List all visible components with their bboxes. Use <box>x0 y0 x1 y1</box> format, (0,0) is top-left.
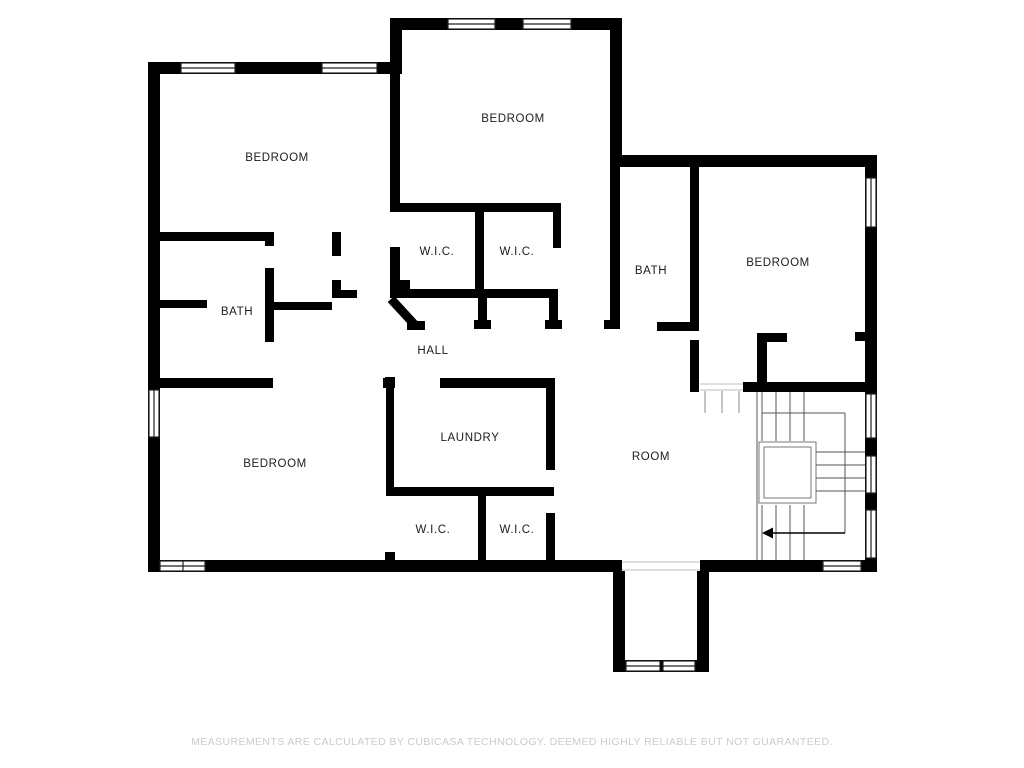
room-label-bedroom-top-left: BEDROOM <box>245 152 309 164</box>
room-label-wic-lower-right: W.I.C. <box>500 524 535 536</box>
window <box>181 63 235 73</box>
room-label-bedroom-bottom-left: BEDROOM <box>243 458 307 470</box>
room-label-bath-left: BATH <box>221 306 253 318</box>
door-thresholds <box>622 383 743 571</box>
window <box>322 63 377 73</box>
window <box>149 390 159 437</box>
room-label-bedroom-right: BEDROOM <box>746 257 810 269</box>
room-label-bedroom-top-middle: BEDROOM <box>481 113 545 125</box>
window <box>866 456 876 493</box>
floorplan-page: BEDROOM BEDROOM BEDROOM BEDROOM BATH BAT… <box>0 0 1024 768</box>
diagonal-door-wall <box>391 299 425 330</box>
room-label-wic-lower-left: W.I.C. <box>416 524 451 536</box>
window <box>866 394 876 438</box>
window <box>448 19 495 29</box>
room-label-hall: HALL <box>417 345 448 357</box>
window <box>663 661 695 671</box>
window <box>823 561 861 571</box>
window <box>626 661 660 671</box>
room-label-bath-middle: BATH <box>635 265 667 277</box>
window <box>160 561 205 571</box>
window <box>866 178 876 227</box>
room-label-wic-upper-right: W.I.C. <box>500 246 535 258</box>
window <box>523 19 571 29</box>
measurement-disclaimer: MEASUREMENTS ARE CALCULATED BY CUBICASA … <box>0 736 1024 748</box>
staircase <box>705 391 865 560</box>
room-label-wic-upper-left: W.I.C. <box>420 246 455 258</box>
room-label-room: ROOM <box>632 451 670 463</box>
window <box>866 510 876 558</box>
room-label-laundry: LAUNDRY <box>441 432 500 444</box>
